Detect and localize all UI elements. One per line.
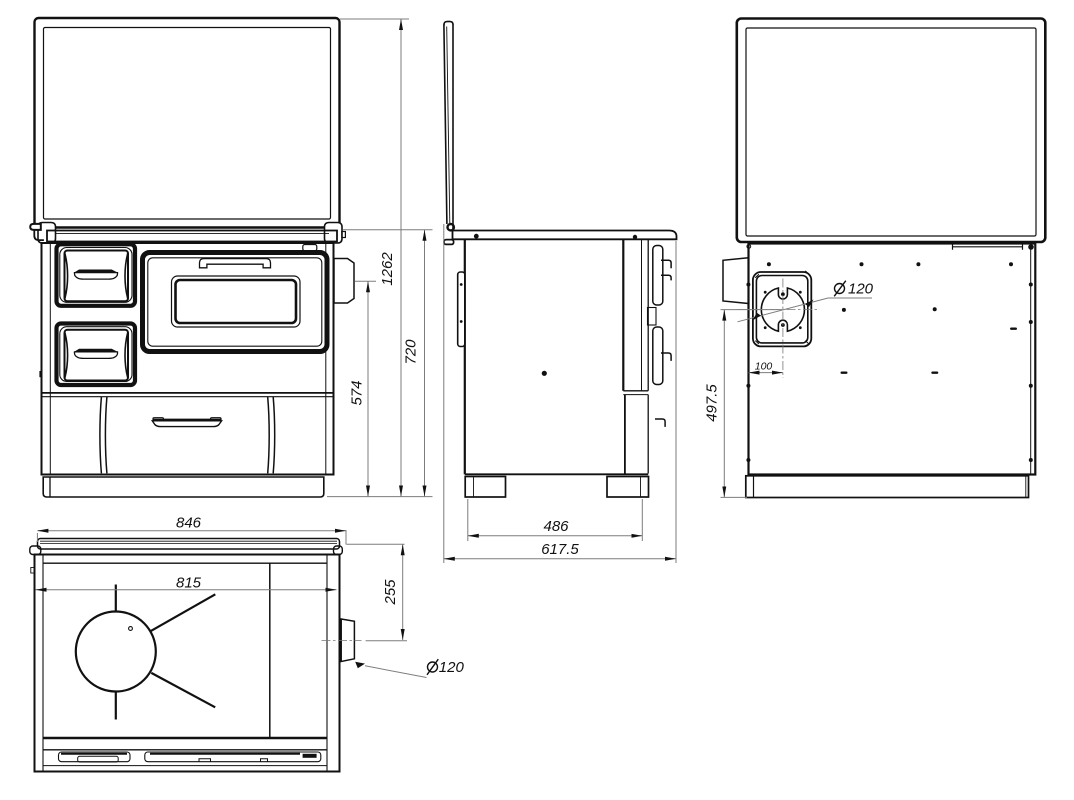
svg-text:617.5: 617.5 <box>541 541 579 558</box>
svg-text:120: 120 <box>848 281 874 298</box>
svg-text:815: 815 <box>176 574 202 591</box>
svg-text:1262: 1262 <box>379 252 396 286</box>
svg-text:497.5: 497.5 <box>704 384 721 422</box>
svg-text:255: 255 <box>382 579 399 606</box>
svg-text:120: 120 <box>439 659 465 676</box>
svg-text:486: 486 <box>543 518 569 535</box>
svg-text:846: 846 <box>176 514 202 531</box>
svg-text:574: 574 <box>349 380 366 405</box>
svg-text:100: 100 <box>755 360 773 372</box>
svg-text:720: 720 <box>403 339 420 365</box>
